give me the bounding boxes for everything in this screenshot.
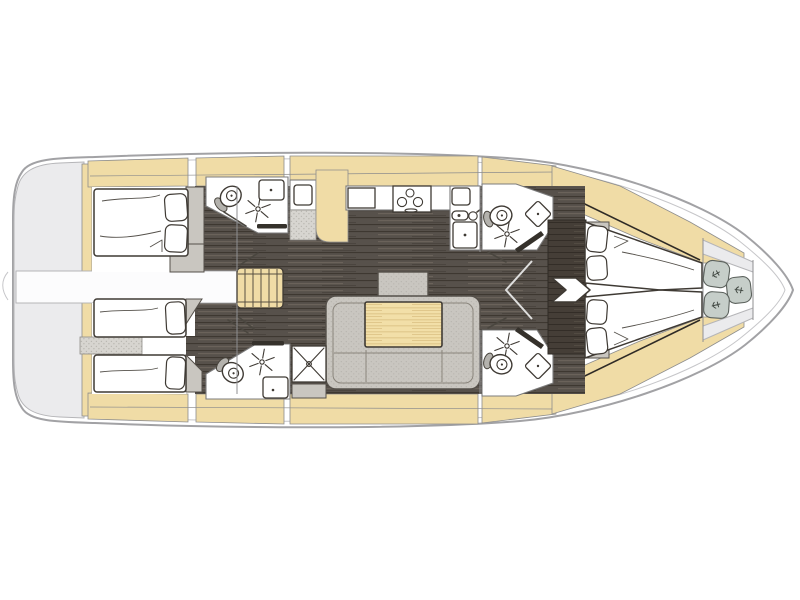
- aft-cabin-starboard: [80, 299, 202, 394]
- nav-locker: [290, 170, 348, 242]
- yacht-floorplan: [0, 0, 800, 600]
- shelf-bar: [252, 341, 284, 346]
- pillow: [165, 357, 186, 390]
- stern-passage: [16, 271, 237, 303]
- aft-cabin-port: [92, 187, 204, 272]
- washbasin: [263, 377, 288, 398]
- pillow: [164, 193, 188, 221]
- pillow: [586, 225, 609, 253]
- wood-cabinet: [316, 170, 348, 242]
- pillow: [586, 299, 608, 324]
- pillow: [164, 224, 187, 252]
- pillow: [586, 327, 609, 355]
- pillow: [165, 301, 186, 334]
- deck-top-1: [88, 158, 188, 187]
- hatched-locker: [290, 210, 316, 240]
- bench-bar: [257, 224, 287, 229]
- pillow: [586, 255, 608, 280]
- shelf-tray: [294, 185, 312, 205]
- berth-divider: [80, 337, 142, 354]
- swim-ladder-icon: [3, 272, 8, 300]
- counter-cabinet: [348, 188, 375, 208]
- shower-stall: [292, 346, 326, 398]
- stove-icon: [393, 186, 431, 212]
- salon-table: [365, 302, 442, 347]
- companionway-stairs: [237, 268, 283, 308]
